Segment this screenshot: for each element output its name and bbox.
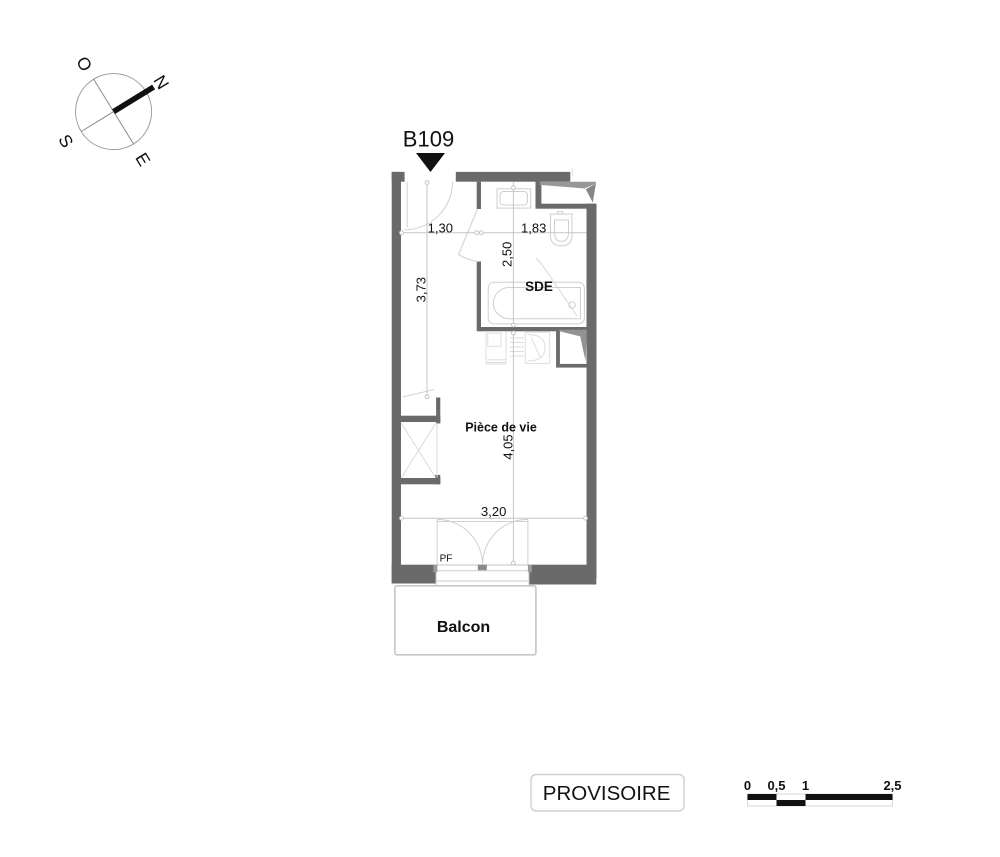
svg-text:3,20: 3,20 bbox=[481, 504, 506, 519]
svg-text:4,05: 4,05 bbox=[501, 434, 516, 459]
svg-text:0,5: 0,5 bbox=[767, 778, 785, 793]
svg-text:SDE: SDE bbox=[525, 279, 553, 294]
svg-text:1,83: 1,83 bbox=[521, 221, 546, 236]
svg-text:PF: PF bbox=[440, 554, 453, 565]
svg-text:2,5: 2,5 bbox=[883, 778, 901, 793]
svg-text:0: 0 bbox=[744, 778, 751, 793]
svg-text:3,73: 3,73 bbox=[414, 277, 429, 302]
svg-text:1: 1 bbox=[802, 778, 809, 793]
svg-text:B109: B109 bbox=[403, 127, 454, 152]
svg-text:1,30: 1,30 bbox=[428, 221, 453, 236]
svg-text:Balcon: Balcon bbox=[437, 619, 490, 636]
svg-text:PROVISOIRE: PROVISOIRE bbox=[543, 782, 671, 805]
svg-text:2,50: 2,50 bbox=[499, 242, 514, 267]
svg-text:Pièce de vie: Pièce de vie bbox=[465, 421, 537, 435]
